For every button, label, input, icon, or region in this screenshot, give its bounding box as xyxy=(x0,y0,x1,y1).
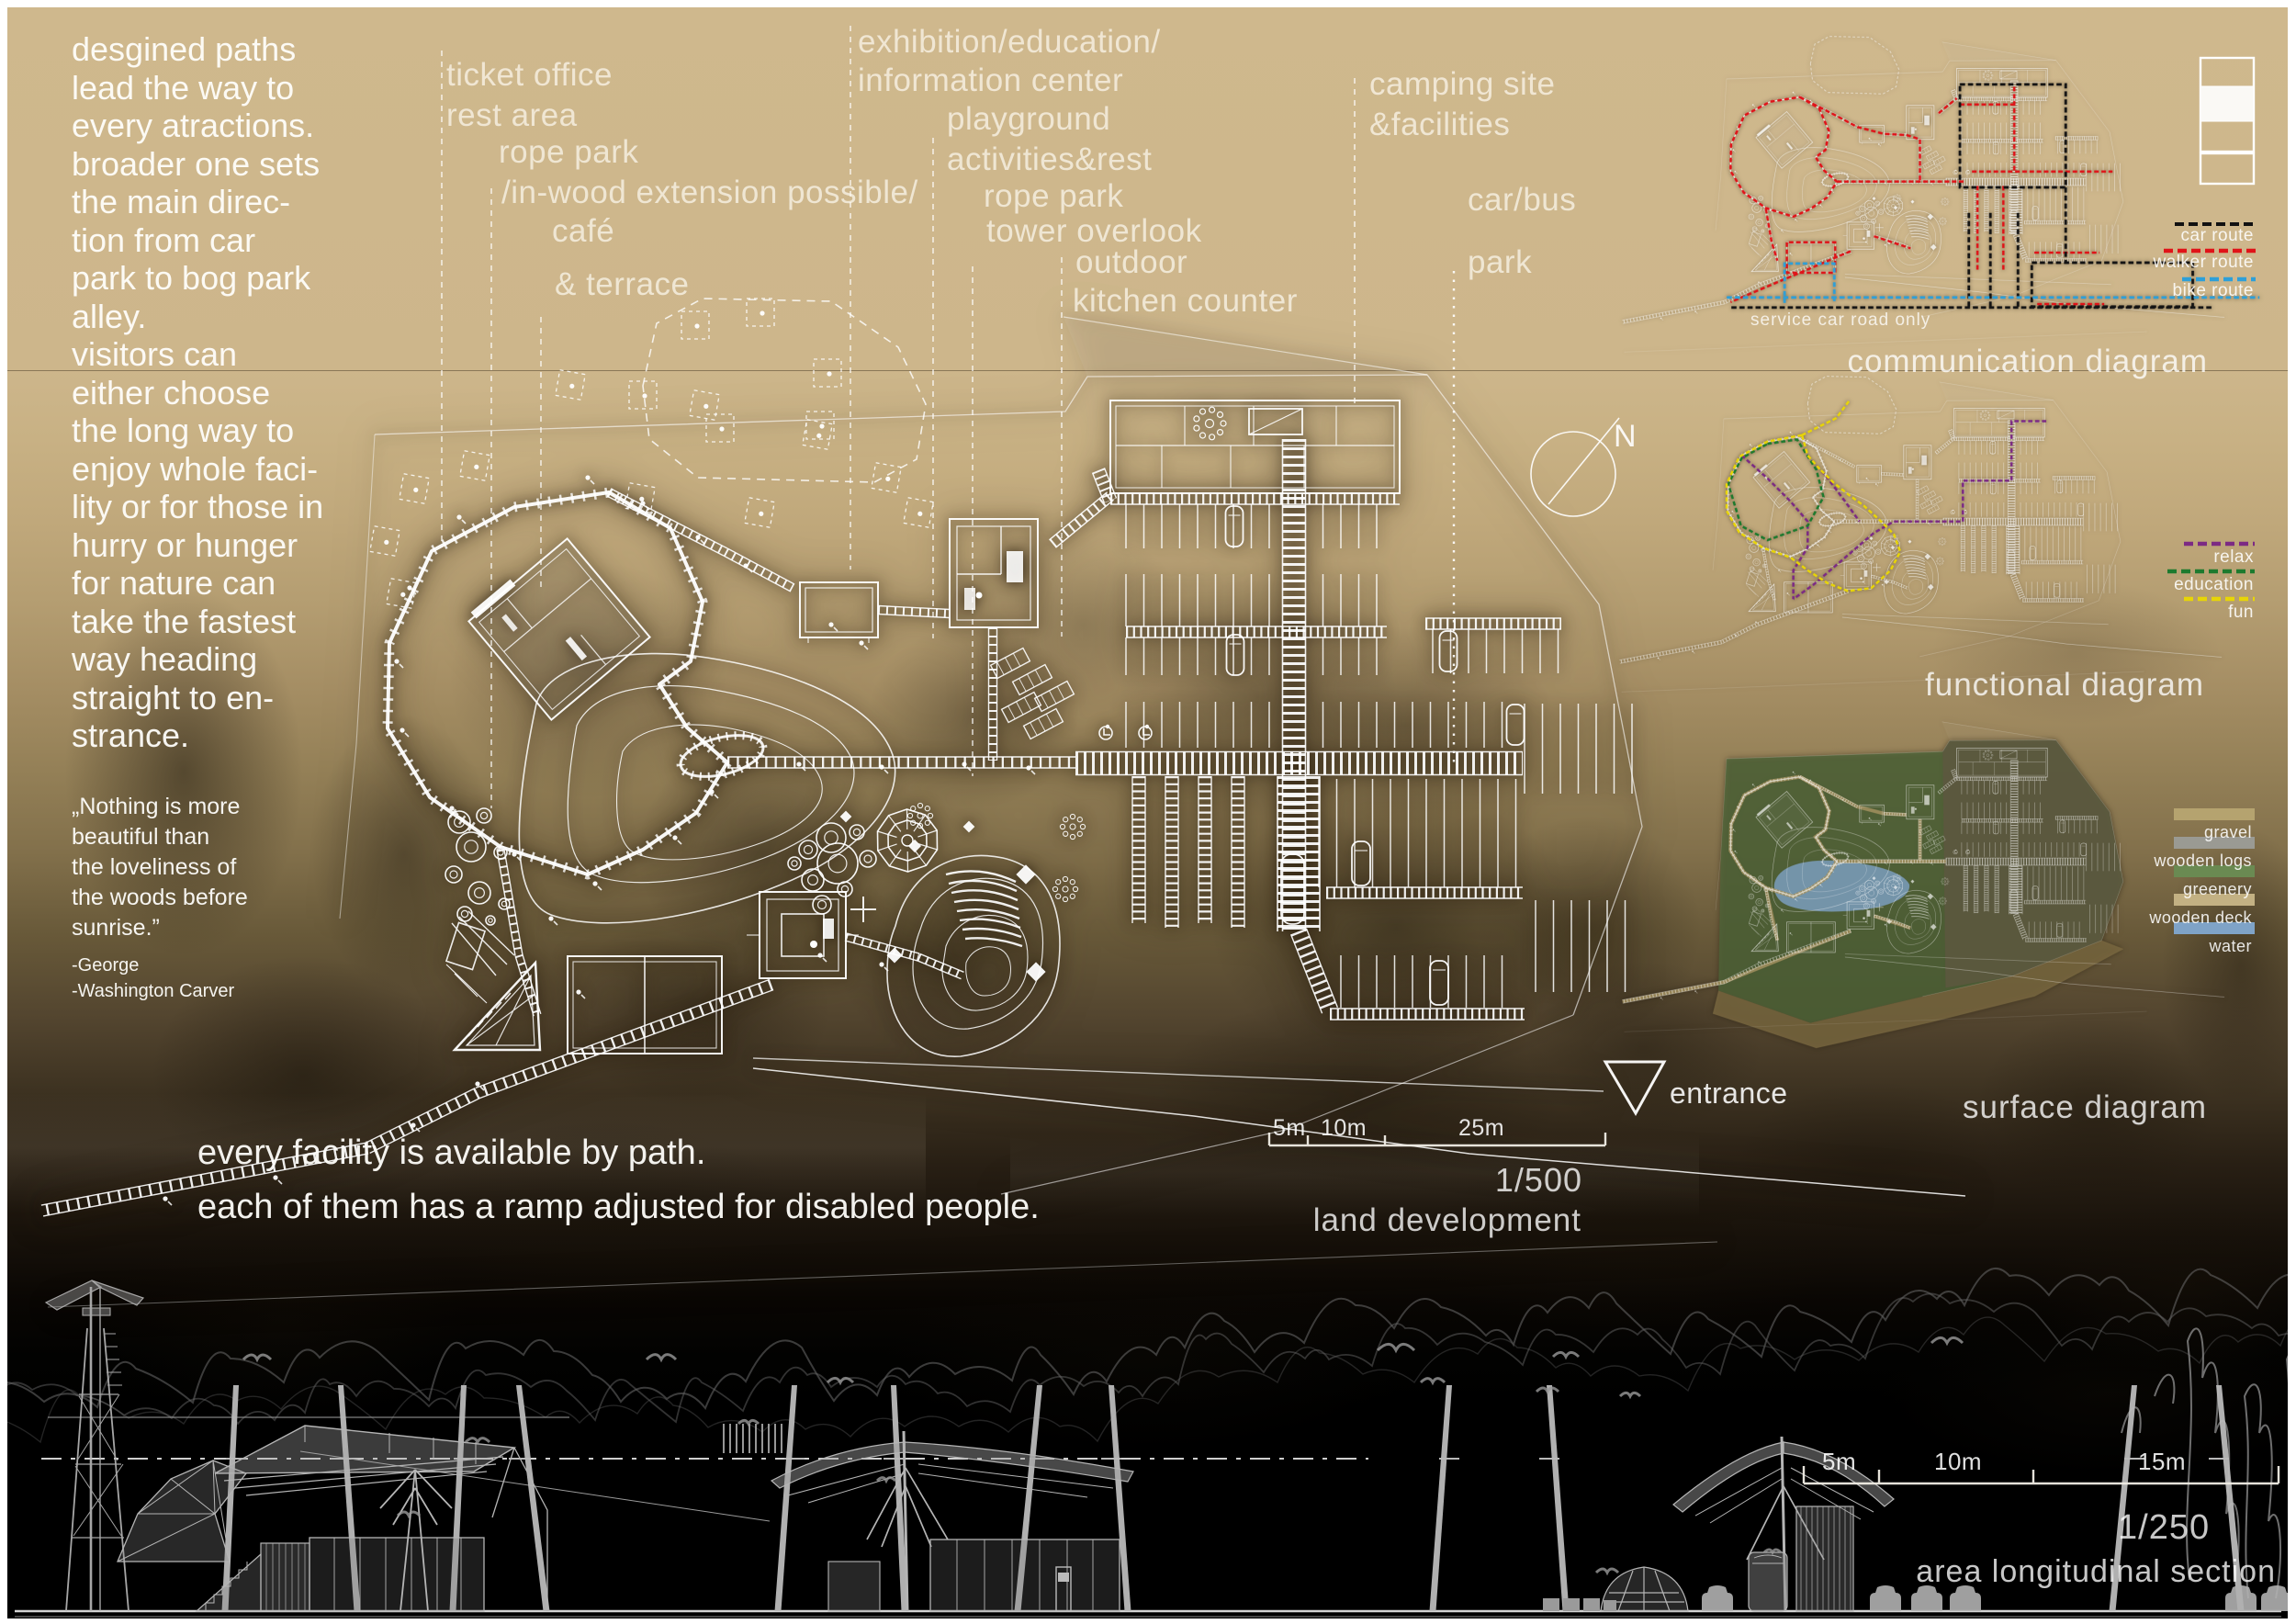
svg-text:N: N xyxy=(1614,419,1637,454)
